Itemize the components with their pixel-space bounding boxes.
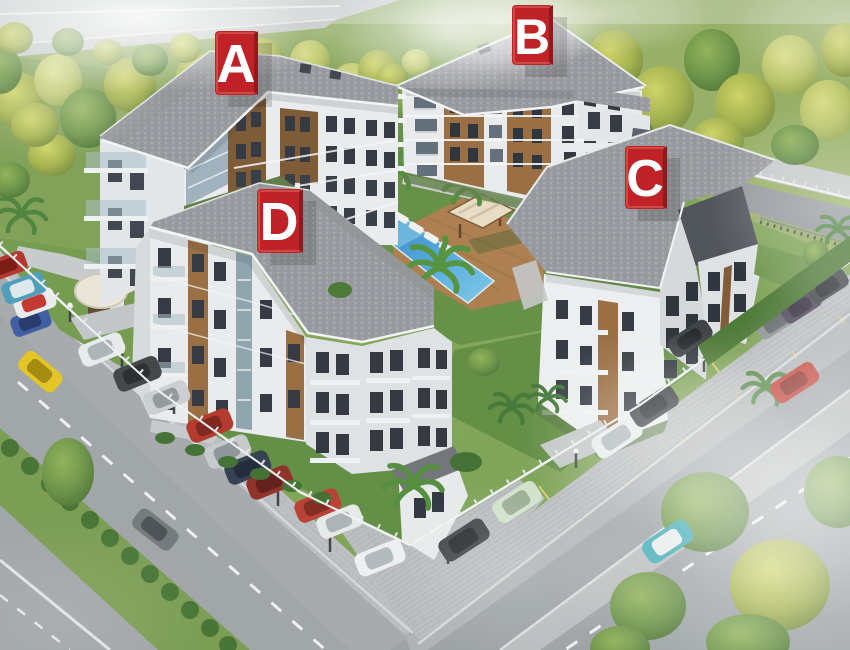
svg-text:A: A [217, 34, 256, 94]
svg-text:C: C [626, 150, 664, 208]
svg-text:B: B [514, 9, 550, 65]
svg-text:D: D [260, 192, 299, 252]
